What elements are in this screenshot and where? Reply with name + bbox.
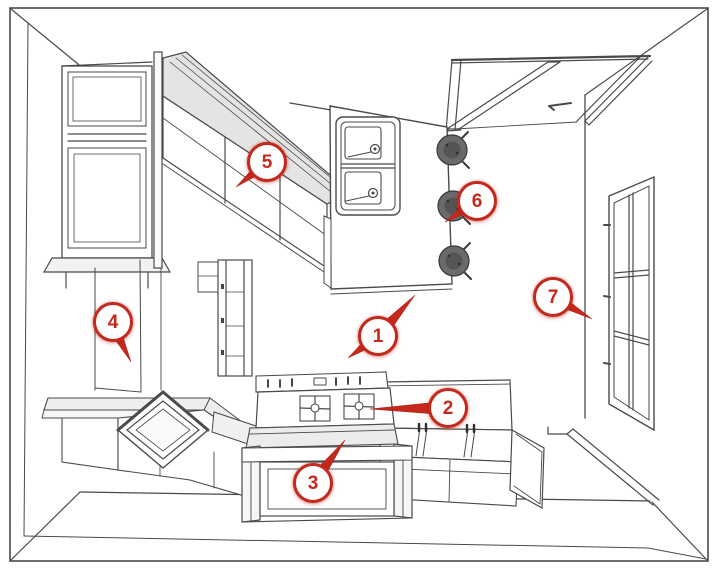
doorway-opening [446,56,652,131]
callout-6-number: 6 [472,192,483,211]
double-bowl-sink [336,117,400,215]
callout-2: 2 [428,388,468,428]
kitchen-line-drawing [0,0,720,571]
glass-front-hutch [44,52,170,288]
callout-1: 1 [358,316,398,356]
callout-1-number: 1 [373,327,384,346]
corner-base-cabinet-sink [42,392,258,500]
callout-5-number: 5 [262,153,273,172]
baseboard-trim [548,427,659,505]
callout-7: 7 [533,277,573,317]
callout-4: 4 [93,302,133,342]
callout-5: 5 [247,142,287,182]
tall-slim-cabinet [218,260,252,376]
callout-6: 6 [457,181,497,221]
callout-7-number: 7 [548,288,559,307]
callout-4-number: 4 [108,313,119,332]
callout-2-number: 2 [443,399,454,418]
kitchen-island [324,106,452,294]
callout-3-number: 3 [308,474,319,493]
kitchen-plan-figure: 1 2 3 4 5 6 7 [0,0,720,571]
casement-window [604,177,654,430]
callout-3: 3 [293,463,333,503]
